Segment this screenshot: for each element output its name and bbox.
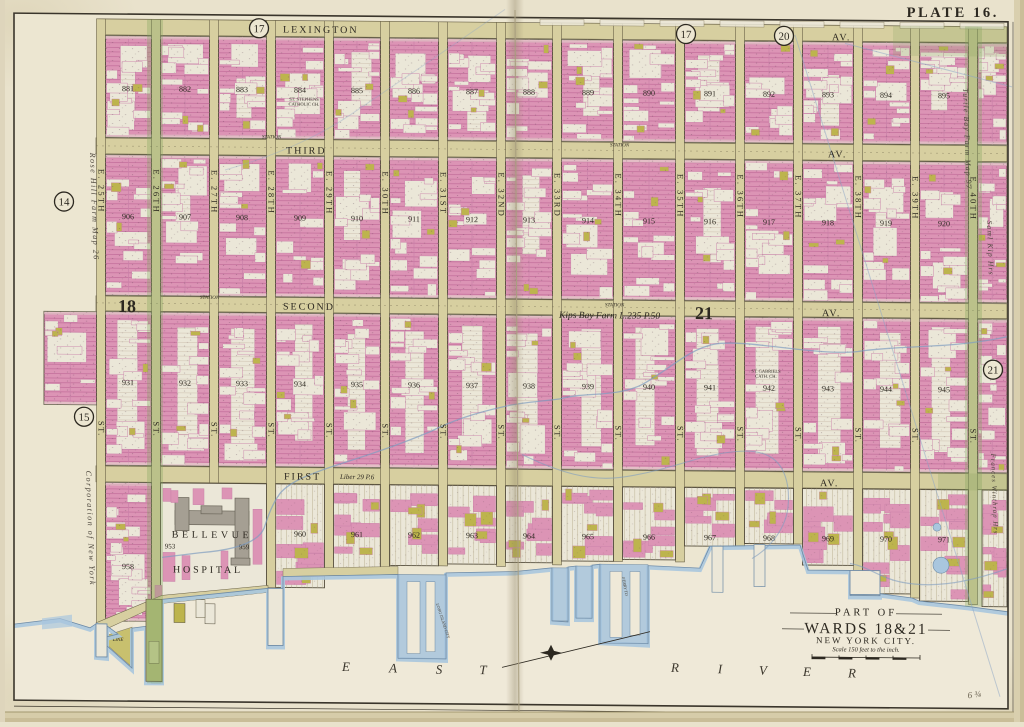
svg-text:881: 881 (122, 84, 134, 93)
svg-text:969: 969 (822, 534, 834, 543)
svg-text:E. 26TH: E. 26TH (151, 169, 161, 214)
svg-text:920: 920 (938, 219, 950, 228)
svg-text:STATION: STATION (610, 143, 630, 148)
svg-text:CATHOLIC CH.: CATHOLIC CH. (289, 102, 320, 107)
svg-text:887: 887 (466, 87, 478, 96)
svg-text:Kips Bay Farm L.235 P.50: Kips Bay Farm L.235 P.50 (558, 311, 660, 322)
svg-text:E. 32ND: E. 32ND (496, 172, 506, 218)
svg-text:15: 15 (79, 412, 90, 424)
svg-text:Scale 150 feet to the inch.: Scale 150 feet to the inch. (832, 646, 900, 654)
svg-text:963: 963 (466, 531, 478, 540)
svg-text:912: 912 (466, 215, 478, 224)
svg-text:R: R (847, 665, 856, 680)
svg-text:ST.: ST. (735, 426, 745, 442)
svg-text:910: 910 (351, 214, 363, 223)
svg-text:945: 945 (938, 385, 950, 394)
svg-text:942: 942 (763, 384, 775, 393)
svg-text:E. 29TH: E. 29TH (324, 171, 334, 216)
svg-text:914: 914 (582, 216, 594, 225)
svg-text:Liber 29 P.6: Liber 29 P.6 (339, 473, 375, 481)
svg-text:960: 960 (294, 530, 306, 539)
svg-text:21: 21 (695, 303, 713, 323)
svg-text:970: 970 (880, 535, 892, 544)
svg-text:E. 27TH: E. 27TH (209, 170, 219, 215)
svg-text:ST.: ST. (151, 421, 161, 437)
svg-text:ST.: ST. (968, 428, 978, 444)
svg-text:ST.: ST. (853, 427, 863, 443)
svg-text:STATION: STATION (262, 135, 282, 140)
svg-text:913: 913 (523, 216, 535, 225)
svg-text:ST.: ST. (209, 422, 219, 438)
svg-text:895: 895 (938, 91, 950, 100)
svg-text:17: 17 (254, 23, 265, 35)
svg-text:944: 944 (880, 385, 892, 394)
svg-text:21: 21 (988, 365, 999, 377)
svg-text:958: 958 (122, 562, 134, 571)
svg-text:889: 889 (582, 88, 594, 97)
svg-text:E. 30TH: E. 30TH (380, 171, 390, 216)
svg-text:911: 911 (408, 215, 420, 224)
svg-text:916: 916 (704, 217, 716, 226)
svg-text:906: 906 (122, 212, 134, 221)
svg-text:909: 909 (294, 214, 306, 223)
svg-text:ST.: ST. (613, 425, 623, 441)
svg-text:ST.: ST. (910, 428, 920, 444)
svg-text:931: 931 (122, 378, 134, 387)
svg-text:LEXINGTON: LEXINGTON (283, 24, 359, 36)
svg-text:20: 20 (779, 31, 790, 43)
svg-text:E. 31ST: E. 31ST (438, 172, 448, 215)
svg-text:892: 892 (763, 90, 775, 99)
svg-text:E. 34TH: E. 34TH (613, 173, 623, 218)
svg-text:894: 894 (880, 91, 892, 100)
svg-text:884: 884 (294, 86, 306, 95)
svg-text:STATION: STATION (605, 303, 625, 308)
svg-text:ST.: ST. (793, 427, 803, 443)
svg-text:915: 915 (643, 217, 655, 226)
svg-text:939: 939 (582, 382, 594, 391)
svg-text:933: 933 (236, 379, 248, 388)
svg-text:882: 882 (179, 85, 191, 94)
svg-text:I: I (717, 661, 723, 676)
svg-text:917: 917 (763, 218, 775, 227)
svg-text:971: 971 (938, 535, 950, 544)
svg-text:E: E (802, 664, 811, 679)
svg-text:E. 37TH: E. 37TH (793, 175, 803, 220)
svg-text:CATH. CH.: CATH. CH. (755, 374, 776, 379)
svg-text:908: 908 (236, 213, 248, 222)
svg-text:938: 938 (523, 382, 535, 391)
svg-text:SECOND: SECOND (283, 301, 335, 312)
svg-text:AV.: AV. (822, 308, 841, 319)
svg-text:14: 14 (59, 197, 70, 209)
svg-text:ST.: ST. (266, 422, 276, 438)
svg-text:S: S (436, 662, 443, 677)
svg-text:885: 885 (351, 86, 363, 95)
svg-text:AV.: AV. (820, 478, 839, 489)
svg-text:ST.: ST. (438, 424, 448, 440)
svg-text:17: 17 (681, 29, 692, 41)
svg-text:18: 18 (118, 296, 136, 316)
svg-text:THIRD: THIRD (286, 145, 327, 156)
svg-text:961: 961 (351, 530, 363, 539)
svg-text:966: 966 (643, 533, 655, 542)
svg-text:ST.: ST. (96, 421, 106, 437)
svg-text:AV.: AV. (832, 32, 851, 43)
svg-text:891: 891 (704, 89, 716, 98)
svg-text:PLATE 16.: PLATE 16. (907, 5, 999, 21)
svg-text:E. 36TH: E. 36TH (735, 174, 745, 219)
svg-text:907: 907 (179, 213, 191, 222)
svg-text:FIRST: FIRST (284, 471, 321, 482)
svg-text:937: 937 (466, 381, 478, 390)
svg-text:940: 940 (643, 383, 655, 392)
svg-text:6 ¾: 6 ¾ (967, 689, 982, 701)
svg-text:AV.: AV. (828, 149, 847, 160)
svg-text:E. 38TH: E. 38TH (853, 175, 863, 220)
svg-text:919: 919 (880, 219, 892, 228)
svg-text:E. 39TH: E. 39TH (910, 176, 920, 221)
svg-text:936: 936 (408, 381, 420, 390)
svg-text:941: 941 (704, 383, 716, 392)
svg-text:HOSPITAL: HOSPITAL (173, 565, 243, 577)
svg-text:893: 893 (822, 90, 834, 99)
svg-text:943: 943 (822, 384, 834, 393)
svg-text:967: 967 (704, 533, 716, 542)
svg-text:935: 935 (351, 380, 363, 389)
svg-text:ST.: ST. (675, 426, 685, 442)
svg-text:STATION: STATION (200, 296, 220, 301)
svg-text:953: 953 (165, 542, 176, 550)
svg-text:888: 888 (523, 88, 535, 97)
svg-text:964: 964 (523, 532, 535, 541)
svg-text:918: 918 (822, 218, 834, 227)
svg-text:886: 886 (408, 87, 420, 96)
svg-text:Saml Kip Hrs: Saml Kip Hrs (985, 220, 996, 275)
svg-text:962: 962 (408, 531, 420, 540)
svg-text:ST.: ST. (496, 424, 506, 440)
svg-text:PART OF: PART OF (835, 607, 897, 619)
svg-text:E. 28TH: E. 28TH (266, 170, 276, 215)
svg-text:890: 890 (643, 89, 655, 98)
svg-text:BELLEVUE: BELLEVUE (172, 529, 252, 541)
svg-text:ST.: ST. (324, 423, 334, 439)
svg-text:T: T (479, 662, 487, 677)
svg-text:E. 33RD: E. 33RD (552, 173, 562, 218)
svg-text:968: 968 (763, 534, 775, 543)
svg-text:934: 934 (294, 380, 306, 389)
svg-text:NEW YORK CITY.: NEW YORK CITY. (816, 635, 916, 646)
svg-text:ST.: ST. (552, 425, 562, 441)
svg-text:ST.: ST. (380, 423, 390, 439)
svg-text:E: E (341, 659, 350, 674)
svg-text:932: 932 (179, 379, 191, 388)
svg-text:883: 883 (236, 85, 248, 94)
svg-text:A: A (388, 660, 397, 675)
svg-text:965: 965 (582, 532, 594, 541)
svg-text:E. 35TH: E. 35TH (675, 174, 685, 219)
svg-text:R: R (670, 660, 679, 675)
